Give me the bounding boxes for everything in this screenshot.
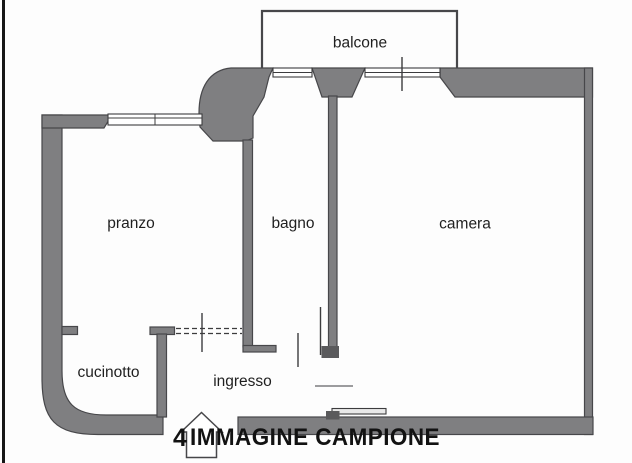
wall-cucinotto-right-cap [150, 327, 175, 335]
wall-pranzo-top [42, 115, 112, 128]
image-left-border [2, 0, 5, 463]
wall-cucinotto-right [157, 334, 167, 417]
door-panel-camera [332, 409, 386, 415]
wall-cucinotto-left-stub [62, 327, 78, 335]
watermark-prefix: 4 [173, 424, 187, 452]
room-label-balcone: balcone [333, 35, 387, 52]
wall-bagno-bottom-stub [243, 346, 276, 353]
room-label-pranzo: pranzo [107, 215, 154, 232]
wall-bagno-camera [329, 96, 338, 348]
wall-top-right [440, 68, 593, 97]
room-label-cucinotto: cucinotto [77, 364, 139, 381]
room-label-camera: camera [439, 216, 491, 233]
wall-right-exterior [585, 68, 593, 435]
room-label-bagno: bagno [271, 215, 314, 232]
room-label-ingresso: ingresso [213, 373, 272, 390]
wall-pier-between-windows [312, 68, 365, 97]
wall-left-exterior-rounded [42, 115, 163, 435]
floor-plan: balcone pranzo bagno camera cucinotto in… [0, 0, 632, 463]
floor-plan-drawing: balcone pranzo bagno camera cucinotto in… [0, 0, 632, 463]
watermark-text: IMMAGINE CAMPIONE [190, 424, 440, 451]
wall-pranzo-bagno [243, 140, 253, 347]
wall-curved-corner-top [199, 68, 273, 141]
door-hinge-block-bagno [322, 346, 340, 358]
door-hinge-block-camera [326, 411, 340, 420]
